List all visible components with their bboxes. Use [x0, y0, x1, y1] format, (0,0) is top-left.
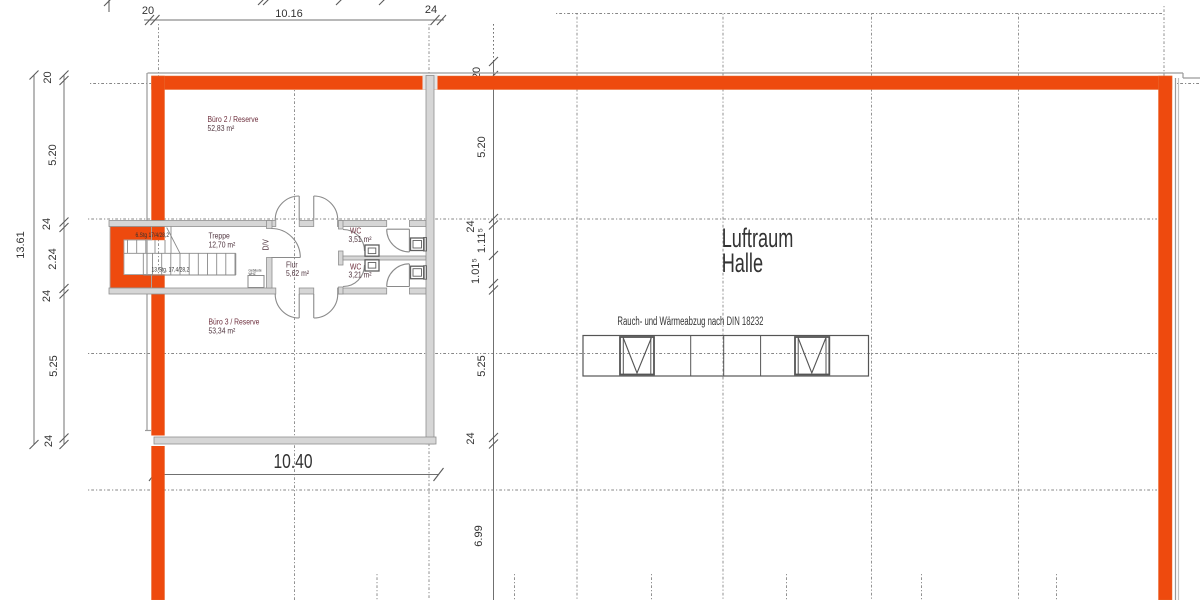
svg-text:12,70 m²: 12,70 m²	[209, 240, 236, 250]
svg-text:10.40: 10.40	[273, 450, 312, 472]
svg-text:5.20: 5.20	[476, 136, 488, 157]
svg-text:53,34 m²: 53,34 m²	[209, 326, 236, 336]
svg-text:5,62 m²: 5,62 m²	[286, 268, 309, 278]
svg-text:5.25: 5.25	[476, 355, 488, 376]
svg-text:3,51 m²: 3,51 m²	[349, 234, 372, 244]
svg-text:20: 20	[142, 5, 154, 17]
svg-text:D/V: D/V	[261, 239, 271, 250]
svg-text:10.16: 10.16	[275, 8, 303, 20]
svg-text:5.25: 5.25	[48, 355, 60, 376]
svg-text:3,21 m²: 3,21 m²	[349, 270, 372, 280]
svg-text:1.11⁵: 1.11⁵	[476, 228, 488, 253]
svg-text:24: 24	[43, 435, 55, 447]
svg-text:24: 24	[465, 432, 477, 444]
svg-text:13.Stg. 17,4/28,2: 13.Stg. 17,4/28,2	[152, 267, 190, 274]
svg-text:WHZ: WHZ	[249, 272, 257, 276]
svg-text:6.Stg 17/4/28,2: 6.Stg 17/4/28,2	[136, 233, 170, 240]
svg-text:Rauch- und Wärmeabzug nach DIN: Rauch- und Wärmeabzug nach DIN 18232	[617, 315, 763, 328]
svg-text:13.61: 13.61	[15, 231, 27, 259]
svg-text:5.20: 5.20	[47, 144, 59, 165]
svg-text:2.24: 2.24	[47, 248, 59, 269]
svg-text:52,83 m²: 52,83 m²	[208, 123, 235, 133]
svg-text:6.99: 6.99	[473, 525, 485, 546]
svg-text:Halle: Halle	[722, 247, 763, 277]
svg-text:20: 20	[42, 71, 54, 83]
svg-text:24: 24	[425, 4, 437, 16]
svg-text:24: 24	[41, 218, 53, 230]
svg-text:24: 24	[41, 290, 53, 302]
svg-text:1.01⁵: 1.01⁵	[470, 258, 482, 284]
